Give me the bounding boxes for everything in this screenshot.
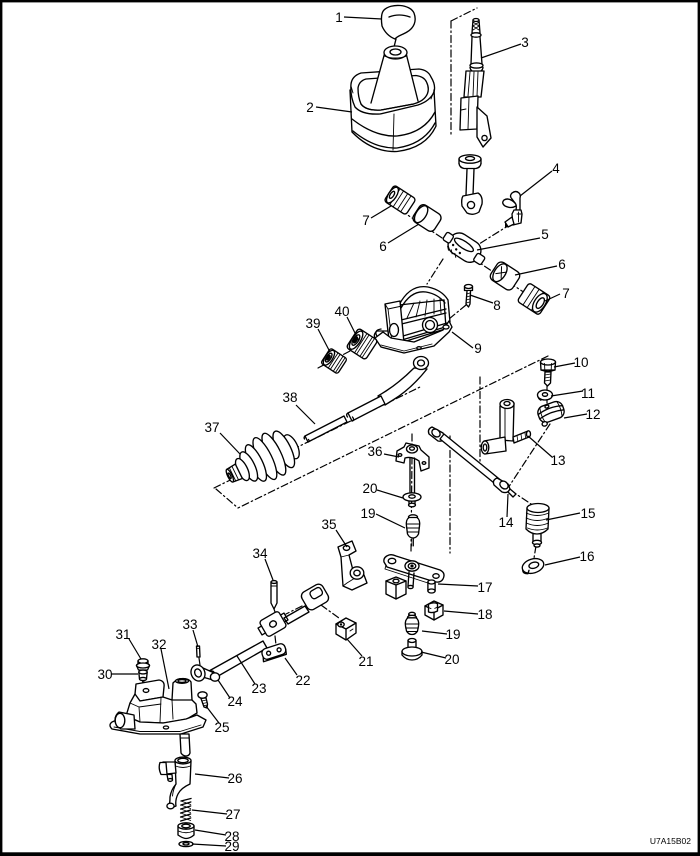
svg-text:7: 7 (562, 286, 570, 301)
svg-text:9: 9 (474, 341, 482, 356)
svg-text:U7A15B02: U7A15B02 (650, 836, 691, 846)
svg-text:16: 16 (579, 549, 594, 564)
svg-text:39: 39 (305, 316, 320, 331)
svg-text:8: 8 (493, 298, 501, 313)
svg-text:21: 21 (358, 654, 373, 669)
svg-text:32: 32 (151, 637, 166, 652)
svg-text:14: 14 (498, 515, 514, 530)
svg-text:17: 17 (477, 580, 492, 595)
svg-text:1: 1 (335, 10, 343, 25)
svg-text:20: 20 (362, 481, 377, 496)
svg-text:18: 18 (477, 607, 492, 622)
svg-text:25: 25 (214, 720, 229, 735)
svg-text:36: 36 (367, 444, 382, 459)
svg-text:37: 37 (204, 420, 219, 435)
svg-text:6: 6 (558, 257, 566, 272)
svg-text:5: 5 (541, 227, 549, 242)
svg-text:23: 23 (251, 681, 266, 696)
svg-text:3: 3 (521, 35, 529, 50)
svg-text:22: 22 (295, 673, 310, 688)
svg-text:38: 38 (282, 390, 297, 405)
svg-text:6: 6 (379, 239, 387, 254)
svg-text:35: 35 (321, 517, 336, 532)
svg-text:15: 15 (580, 506, 595, 521)
svg-text:26: 26 (227, 771, 242, 786)
svg-text:4: 4 (552, 161, 560, 176)
svg-text:7: 7 (362, 213, 370, 228)
svg-text:29: 29 (224, 839, 239, 854)
svg-text:34: 34 (252, 546, 268, 561)
svg-text:27: 27 (225, 807, 240, 822)
svg-text:2: 2 (306, 100, 314, 115)
svg-text:40: 40 (334, 304, 349, 319)
svg-text:19: 19 (445, 627, 460, 642)
svg-text:30: 30 (97, 667, 112, 682)
svg-text:20: 20 (444, 652, 459, 667)
svg-text:10: 10 (573, 355, 588, 370)
svg-text:13: 13 (550, 453, 565, 468)
svg-text:19: 19 (360, 506, 375, 521)
svg-text:12: 12 (585, 407, 600, 422)
svg-text:24: 24 (227, 694, 243, 709)
svg-text:11: 11 (581, 386, 595, 401)
svg-text:33: 33 (182, 617, 197, 632)
svg-text:31: 31 (115, 627, 130, 642)
